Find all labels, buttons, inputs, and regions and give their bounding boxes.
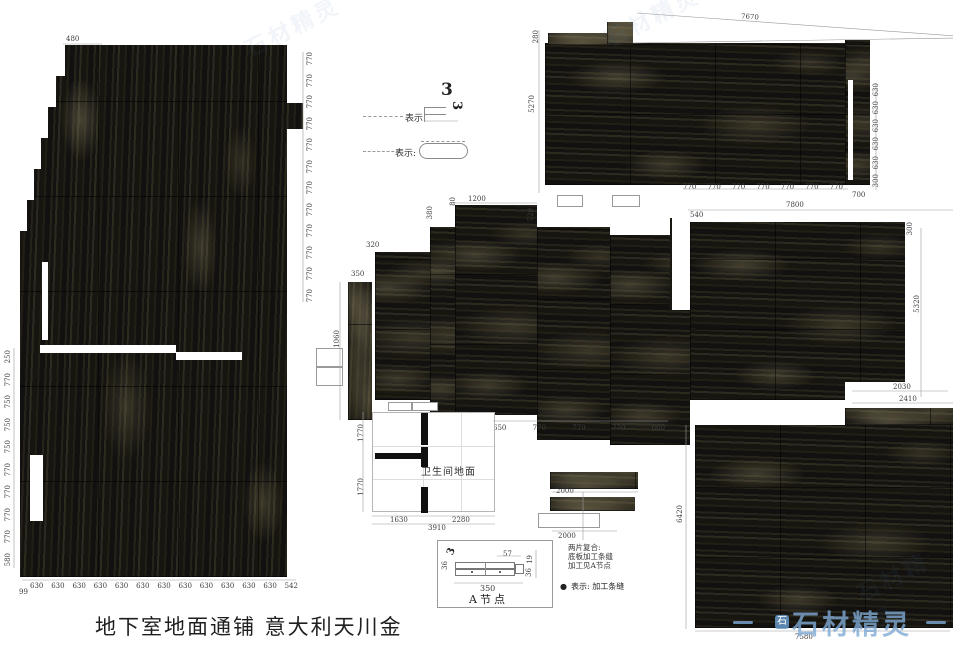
dim-label: 770 — [306, 74, 314, 87]
dim-box — [388, 402, 412, 411]
dim-label: 7670 — [741, 12, 759, 21]
dim-label: 770 — [830, 183, 843, 191]
left-panel-right-dims: 770770770770770770770770770770770770 — [306, 52, 314, 302]
dim-label: 99 — [19, 588, 28, 596]
dim-label: 770 — [306, 117, 314, 130]
dim-label: 650 — [493, 424, 506, 432]
dim-label: 7800 — [786, 201, 804, 209]
dim-label: 630 — [94, 582, 107, 590]
dim-label: 630 — [872, 101, 880, 114]
brand-watermark-text: 石材精灵 — [792, 603, 912, 642]
right-marble-panel — [690, 222, 905, 400]
dim-label: 36 — [525, 568, 533, 577]
dim-label: 2000 — [556, 487, 574, 495]
dim-label: 770 — [306, 138, 314, 151]
watermark-dash — [733, 621, 753, 624]
left-marble-panel — [18, 45, 303, 577]
dim-label: 底板加工条缝 — [568, 552, 613, 561]
dim-label: 770 — [781, 183, 794, 191]
composite-strip — [550, 497, 635, 511]
dim-label: 300 — [872, 174, 880, 187]
dim-label: 540 — [690, 211, 703, 219]
dim-label: 700 — [852, 191, 865, 199]
dim-label: 280 — [532, 30, 540, 43]
top-right-bottom-dims: 770770770770770770770 — [683, 183, 843, 191]
brand-logo-icon: 石 — [775, 615, 789, 629]
grid-line — [373, 446, 494, 447]
dim-label: 1770 — [357, 424, 365, 442]
legend-leader-line — [363, 116, 403, 117]
dim-label: 770 — [533, 424, 546, 432]
grid-line — [461, 413, 462, 511]
dim-label: 770 — [707, 183, 720, 191]
bottom-right-marble-panel — [695, 425, 953, 628]
dim-label: 770 — [4, 485, 12, 498]
dim-label: 770 — [805, 183, 818, 191]
dim-label: 加工见A节点 — [568, 561, 613, 570]
plate-joint — [485, 562, 486, 576]
brand-watermark: 石 石材精灵 — [733, 603, 946, 641]
watermark-dash — [926, 621, 946, 624]
dim-label: 580 — [4, 553, 12, 566]
legend-label: 表示: — [405, 111, 426, 124]
slab-gap — [40, 345, 176, 353]
strip-outline — [538, 513, 600, 528]
dim-label: 300 — [906, 222, 914, 235]
dim-label: 6420 — [676, 505, 684, 523]
top-right-marble-panel — [545, 43, 845, 185]
dim-label: 2280 — [452, 516, 470, 524]
wall-segment — [375, 453, 421, 459]
dim-label: 两片复合: — [568, 543, 613, 552]
dim-label: 2030 — [893, 383, 911, 391]
dim-box — [612, 195, 640, 207]
dim-box — [557, 195, 583, 207]
dim-label: 2000 — [558, 532, 576, 540]
bullet-icon: ● — [560, 582, 567, 591]
dim-label: 1200 — [468, 195, 486, 203]
dim-label: 750 — [4, 440, 12, 453]
dim-label: 770 — [306, 160, 314, 173]
top-right-marble-step — [607, 22, 633, 44]
slab-gap — [670, 218, 690, 310]
dim-label: 770 — [612, 424, 625, 432]
middle-marble-panel — [375, 252, 430, 400]
dim-label: 630 — [136, 582, 149, 590]
seam-legend-label: 表示: 加工条缝 — [571, 581, 624, 592]
legend-symbol-tick — [424, 114, 446, 115]
dim-label: 660 — [652, 424, 665, 432]
slab-gap — [42, 262, 48, 340]
dowel-dot — [471, 571, 473, 573]
dim-label: 630 — [115, 582, 128, 590]
middle-marble-panel — [430, 227, 455, 415]
node-a-detail: 3 57 36 19 36 350 A节点 — [437, 540, 553, 608]
dim-box — [316, 367, 343, 386]
legend-symbol-tick — [424, 107, 446, 108]
dim-label: 770 — [4, 530, 12, 543]
dowel-dot — [499, 571, 501, 573]
dim-label: 380 — [426, 206, 434, 219]
composite-edge-symbol-rotated: 3 — [449, 101, 464, 110]
dim-label: 1060 — [333, 330, 341, 348]
dim-label: 1770 — [357, 478, 365, 496]
drawing-title: 地下室地面通铺 意大利天川金 — [95, 611, 403, 641]
dim-label: 770 — [306, 289, 314, 302]
dim-label: 630 — [51, 582, 64, 590]
dim-label: 630 — [30, 582, 43, 590]
grid-line — [373, 479, 494, 480]
bathroom-label: 卫生间地面 — [421, 463, 476, 478]
middle-marble-panel — [537, 227, 610, 440]
legend-label: 表示: — [395, 146, 416, 159]
dim-label: 770 — [306, 246, 314, 259]
dim-label: 5270 — [528, 95, 536, 113]
middle-marble-slab-350 — [348, 282, 372, 420]
slab-gap — [848, 80, 853, 180]
dim-label: 542 — [285, 582, 298, 590]
legend-leader-line — [363, 151, 399, 152]
left-panel-left-dims: 250770750750750770770770770580 — [4, 350, 12, 566]
dim-label: 630 — [200, 582, 213, 590]
dim-label: 520 — [527, 208, 535, 221]
legend-leader-line — [421, 141, 465, 142]
dim-label: 770 — [756, 183, 769, 191]
dim-label: 750 — [4, 418, 12, 431]
dim-label: 770 — [306, 224, 314, 237]
slab-plate-section — [515, 564, 524, 574]
composite-edge-symbol: 3 — [441, 80, 453, 100]
dim-label: 630 — [72, 582, 85, 590]
dim-label: 770 — [4, 463, 12, 476]
dim-label: 770 — [4, 373, 12, 386]
dim-label: 480 — [66, 35, 79, 43]
dim-label: 250 — [4, 350, 12, 363]
slab-gap — [30, 455, 43, 521]
bathroom-floor-plan: 卫生间地面 — [372, 412, 495, 512]
dim-label: 770 — [306, 52, 314, 65]
node-a-label: A节点 — [469, 591, 508, 607]
left-panel-bottom-dims: 630630630630630630630630630630630630542 — [30, 582, 298, 590]
dim-label: 770 — [683, 183, 696, 191]
top-right-right-dims: 630630630630630300 — [872, 83, 880, 187]
dim-label: 3910 — [428, 524, 446, 532]
dim-label: 630 — [263, 582, 276, 590]
bottom-right-marble-step — [845, 408, 953, 425]
dim-label: 630 — [872, 119, 880, 132]
dim-label: 630 — [179, 582, 192, 590]
dim-label: 5320 — [913, 295, 921, 313]
dim-label: 630 — [872, 137, 880, 150]
seam-legend: ● 表示: 加工条缝 — [560, 581, 624, 592]
dim-label: 770 — [572, 424, 585, 432]
dim-label: 630 — [872, 156, 880, 169]
dim-label: 350 — [351, 270, 364, 278]
dim-label: 2410 — [899, 395, 917, 403]
slab-gap — [176, 352, 242, 360]
dim-label: 36 — [441, 561, 449, 570]
dim-label: 770 — [306, 181, 314, 194]
dim-label: 770 — [306, 267, 314, 280]
dim-label: 630 — [157, 582, 170, 590]
dim-label: 750 — [4, 395, 12, 408]
dim-label: 630 — [872, 83, 880, 96]
middle-marble-panel — [455, 205, 537, 415]
wall-segment — [421, 413, 428, 445]
middle-bottom-dims: 650770770770660 — [493, 424, 665, 432]
seam-pill-symbol — [419, 143, 468, 159]
wall-segment — [421, 487, 428, 513]
dim-label: 80 — [449, 197, 457, 206]
dim-label: 770 — [306, 95, 314, 108]
dim-label: 770 — [4, 508, 12, 521]
dim-box — [316, 348, 343, 367]
composite-edge-symbol: 3 — [445, 546, 458, 556]
stone-layout-drawing: 480 770770770770770770770770770770770770… — [0, 0, 953, 653]
composite-note: 两片复合:底板加工条缝加工见A节点 — [568, 543, 613, 570]
dim-label: 630 — [221, 582, 234, 590]
dim-label: 630 — [242, 582, 255, 590]
dim-label: 320 — [366, 241, 379, 249]
dim-label: 19 — [526, 555, 534, 564]
dim-label: 1630 — [390, 516, 408, 524]
dim-label: 770 — [306, 203, 314, 216]
dim-label: 57 — [503, 550, 512, 558]
dim-box — [412, 402, 438, 411]
dim-label: 770 — [732, 183, 745, 191]
